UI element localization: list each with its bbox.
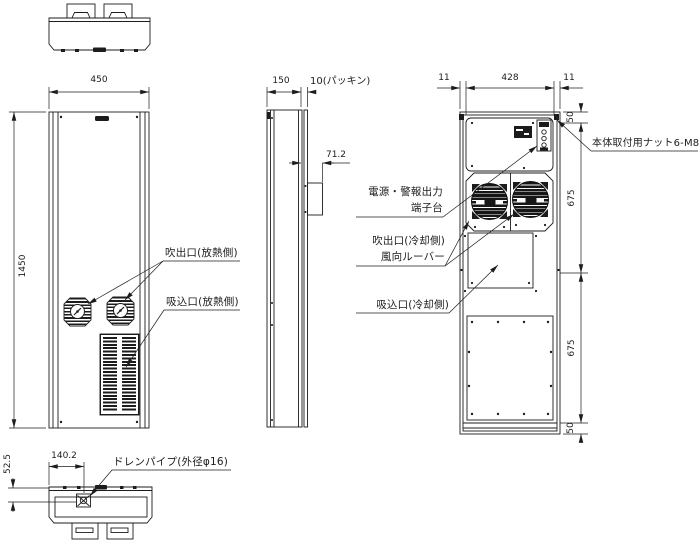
dim-side-depth: 150 <box>272 77 289 87</box>
rear-view <box>459 112 560 434</box>
dim-front-height: 1450 <box>19 255 29 278</box>
rating-label-plate <box>514 126 532 138</box>
callout-rear-inlet: 吸込口(冷却側) <box>356 300 449 312</box>
callout-power-terminal-line1: 電源・警報出力 <box>356 187 443 199</box>
dim-drain-offset-y: 52.5 <box>4 454 14 474</box>
fan-motor-hub <box>525 196 536 203</box>
plate-text-mark <box>516 129 523 131</box>
callout-drain-pipe: ドレンパイプ(外径φ16) <box>113 457 228 469</box>
grille-column-right <box>122 337 136 412</box>
side-view <box>267 110 323 427</box>
rear-lower-panel <box>467 316 553 420</box>
callout-rear-outlet-line2: 風向ルーバー <box>356 252 445 264</box>
outline-drawing-canvas: 450 1450 52.5 140.2 150 10(パッキン) 71.2 11… <box>0 0 700 544</box>
dim-packing: 10(パッキン) <box>310 76 370 87</box>
front-intake-grille <box>100 334 139 415</box>
bottom-view <box>49 485 152 539</box>
brand-logo <box>95 116 109 121</box>
callout-front-inlet: 吸込口(放熱側) <box>166 297 239 309</box>
fan-motor-hub <box>484 198 495 205</box>
front-fan-hub-right <box>113 303 128 318</box>
dim-rear-bottom-pitch: 50 <box>567 422 577 433</box>
dim-rear-right-margin: 11 <box>563 74 574 84</box>
callout-front-outlet: 吹出口(放熱側) <box>165 248 238 260</box>
mounting-nut-top-left <box>459 114 464 120</box>
mounting-nut-top-right <box>554 114 559 120</box>
dimension-lines <box>8 81 588 512</box>
side-view-screws <box>271 117 307 421</box>
rear-cooling-fan-right <box>512 181 549 218</box>
front-fan-hub-left <box>70 304 85 319</box>
rear-cooling-fan-left <box>471 183 508 220</box>
callout-rear-outlet-line1: 吹出口(冷却側) <box>356 236 445 248</box>
dim-rear-bolt-span: 428 <box>501 74 518 84</box>
dim-rear-top-pitch: 50 <box>567 111 577 122</box>
callout-mounting-nut: 本体取付用ナット6-M8 <box>592 138 699 149</box>
drain-pipe-port <box>77 494 91 507</box>
dim-rear-upper-pitch: 675 <box>568 189 578 206</box>
dim-drain-offset-x: 140.2 <box>51 452 77 462</box>
grille-column-left <box>103 337 117 412</box>
dim-front-width: 450 <box>90 76 107 86</box>
rear-view-screws <box>460 122 559 415</box>
rear-inlet-opening <box>468 233 533 288</box>
callout-power-terminal-line2: 端子台 <box>356 203 443 215</box>
bottom-view-fasteners <box>63 485 137 490</box>
top-view <box>49 4 150 52</box>
dim-rear-lower-pitch: 675 <box>568 339 578 356</box>
plate-text-mark <box>524 133 529 135</box>
dim-rear-left-margin: 11 <box>438 74 449 84</box>
top-view-fasteners <box>61 48 138 53</box>
dim-terminal-cover-offset: 71.2 <box>326 151 346 161</box>
